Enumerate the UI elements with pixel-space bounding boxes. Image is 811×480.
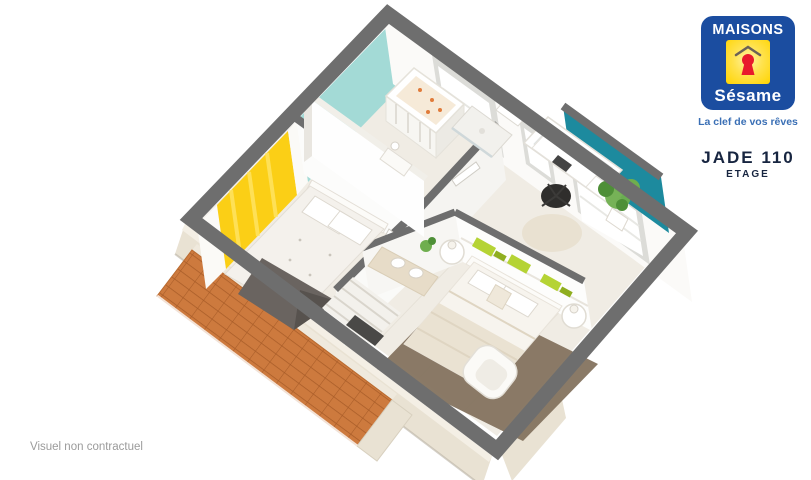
lamp — [448, 241, 456, 249]
sink — [391, 258, 405, 268]
logo-wordmark-script: Sésame — [714, 87, 781, 104]
disclaimer-text: Visuel non contractuel — [30, 441, 143, 453]
office-chair — [541, 184, 571, 208]
lamp — [570, 305, 578, 313]
maisons-sesame-logo: MAISONS Sésame — [701, 16, 795, 110]
brand-block: MAISONS Sésame La clef de vos rêves JADE… — [693, 16, 803, 180]
nightstand-round — [562, 304, 586, 328]
roof-chevron-icon — [736, 47, 760, 55]
keyhole-icon — [726, 40, 770, 84]
lamp — [391, 142, 399, 150]
floor-plan-3d — [0, 0, 811, 480]
sink — [409, 268, 423, 278]
brand-tagline: La clef de vos rêves — [693, 116, 803, 128]
page: MAISONS Sésame La clef de vos rêves JADE… — [0, 0, 811, 480]
logo-wordmark-top: MAISONS — [712, 23, 783, 38]
nightstand-round — [440, 240, 464, 264]
plan-floor-level: ETAGE — [693, 169, 803, 180]
plan-model-name: JADE 110 — [693, 148, 803, 168]
round-rug — [522, 214, 582, 252]
